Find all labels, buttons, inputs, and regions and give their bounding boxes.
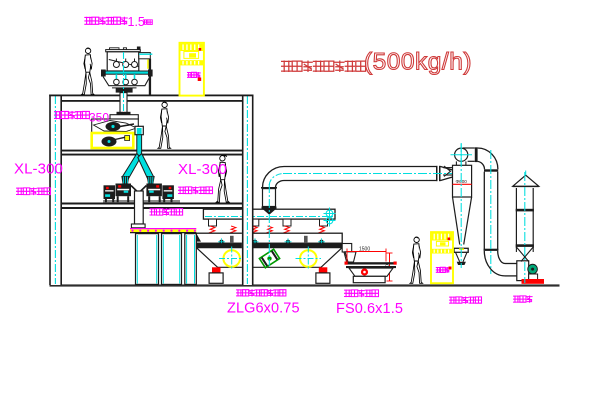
svg-text:(500kg/h): (500kg/h) <box>364 49 472 76</box>
svg-text:XL-300: XL-300 <box>14 161 63 178</box>
svg-text:1500: 1500 <box>359 247 370 253</box>
svg-text:XL-300: XL-300 <box>178 161 227 178</box>
svg-text:1.5: 1.5 <box>128 15 145 29</box>
svg-text:350: 350 <box>89 111 109 125</box>
svg-text:ZLG6x0.75: ZLG6x0.75 <box>227 301 300 317</box>
svg-text:FS0.6x1.5: FS0.6x1.5 <box>336 301 403 317</box>
